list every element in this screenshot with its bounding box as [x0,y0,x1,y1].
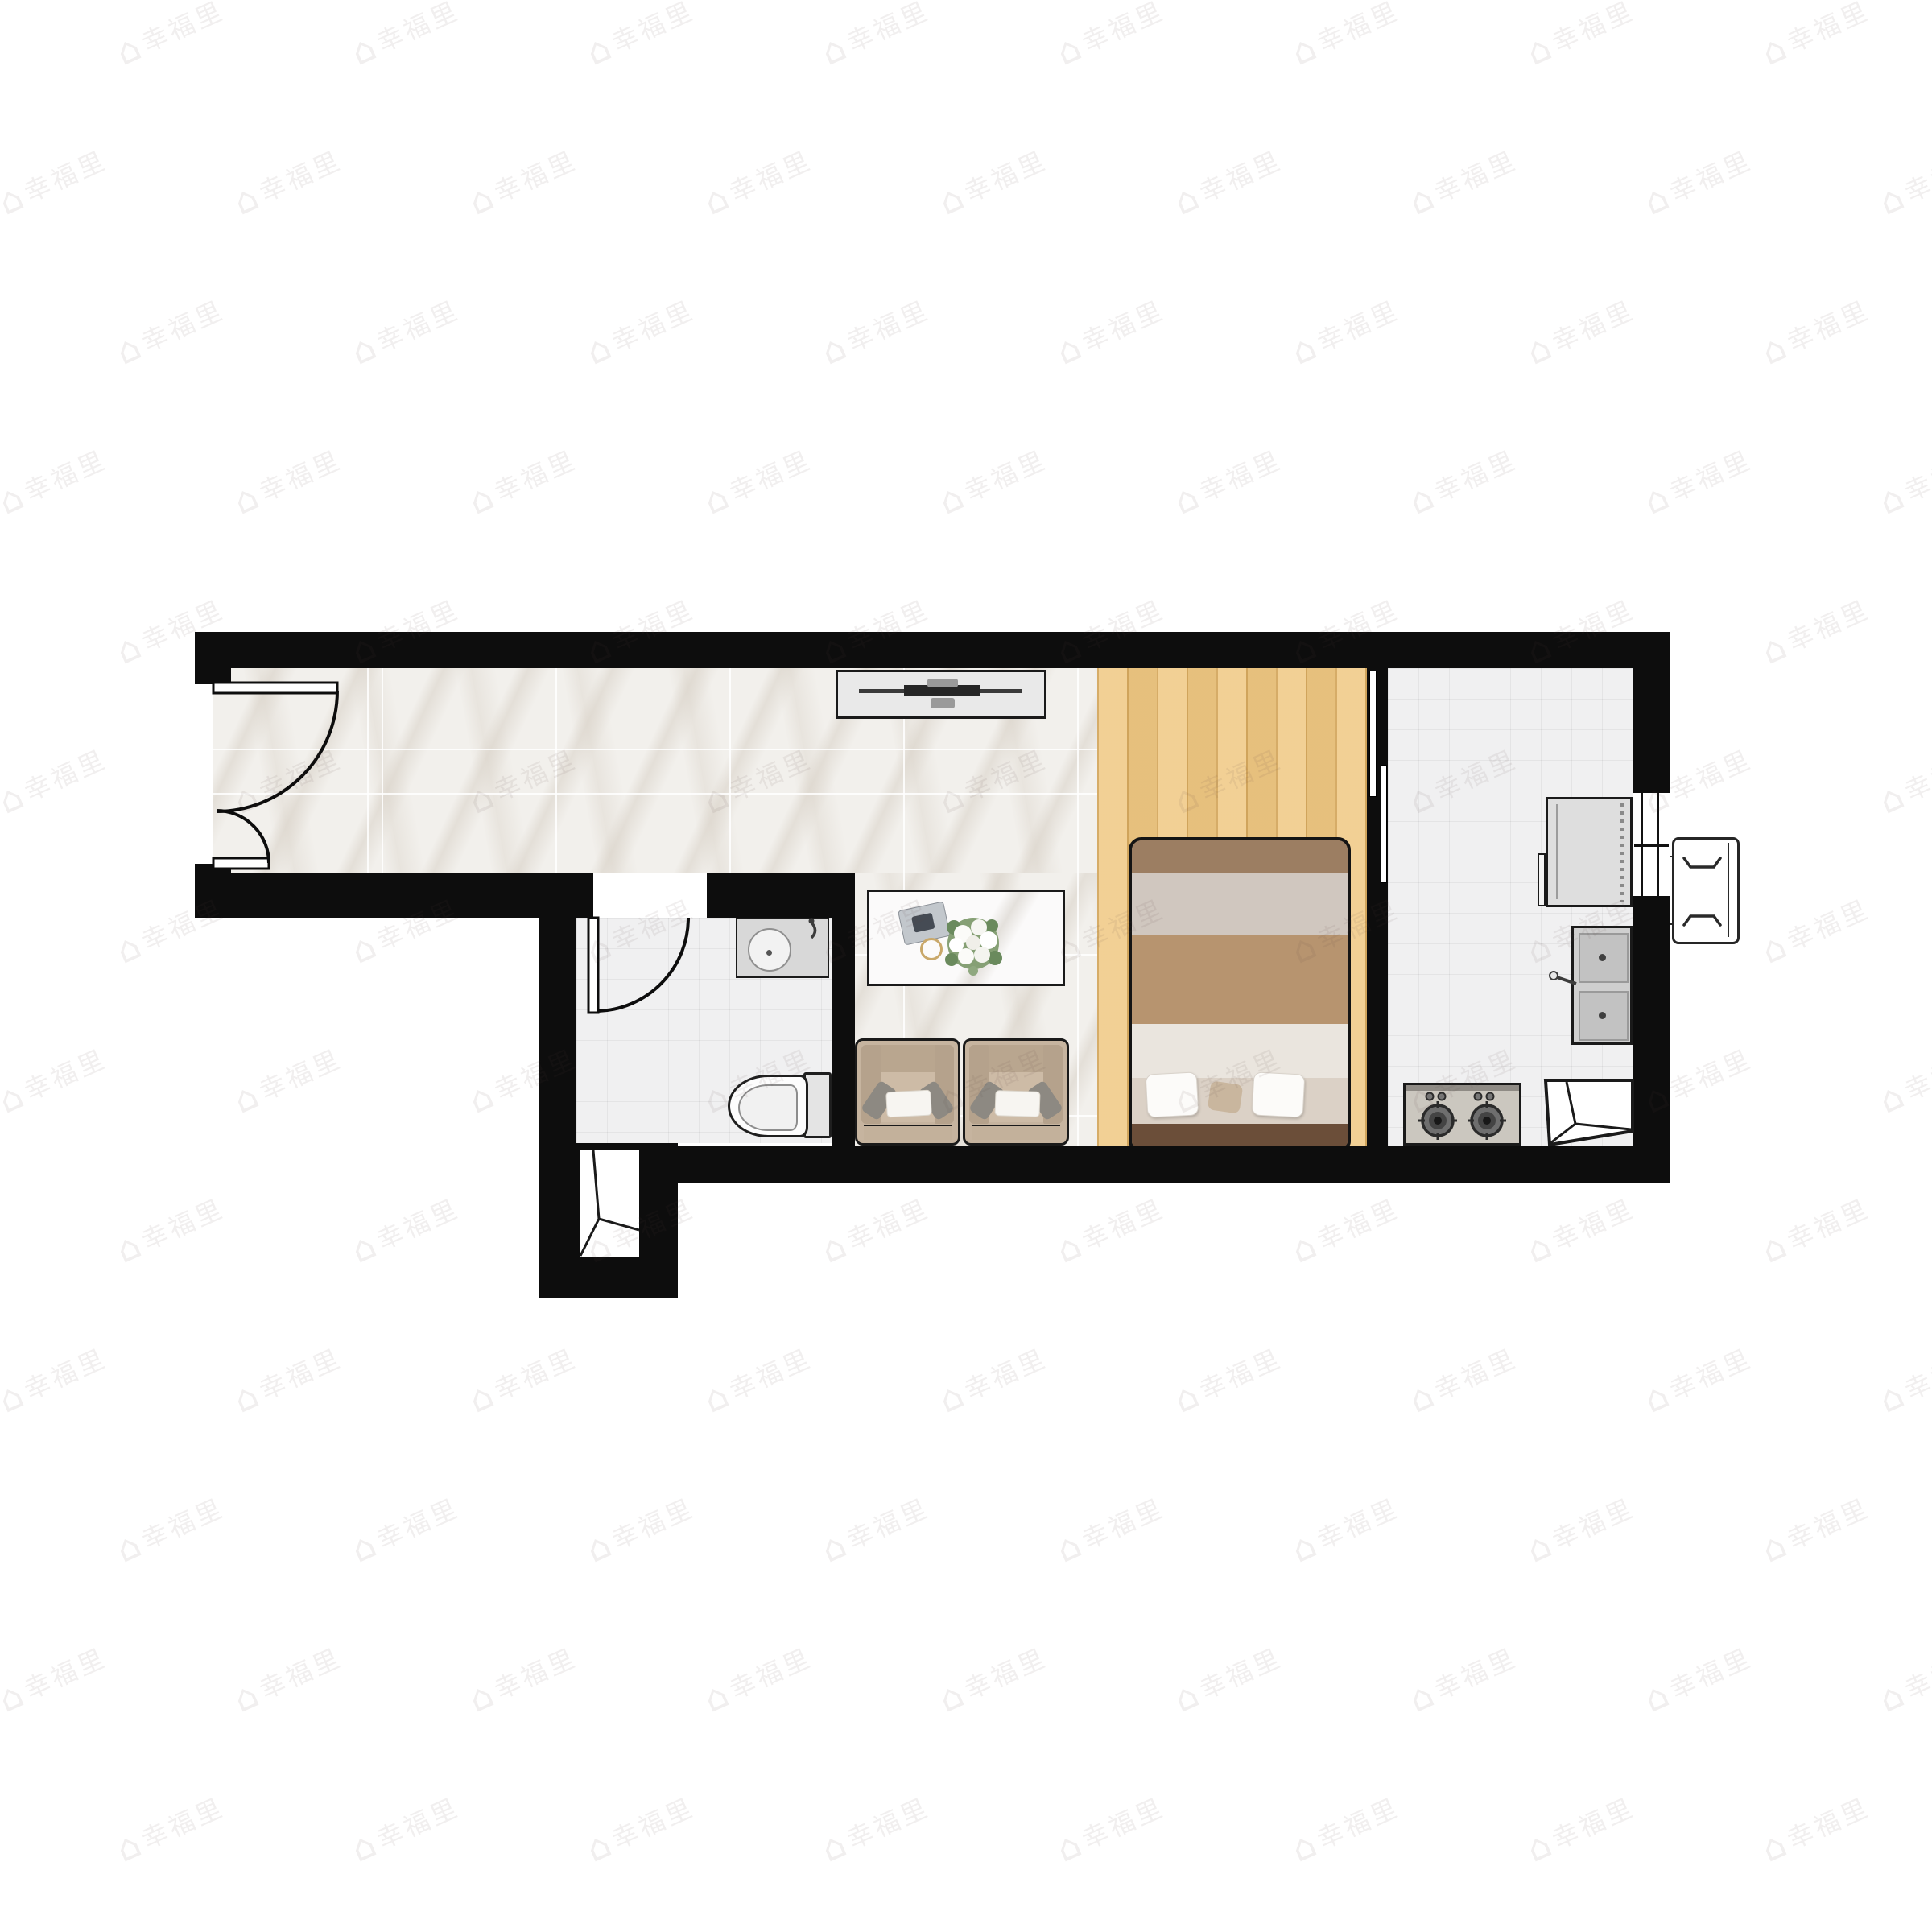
watermark-tile: ⌂幸福里 [1286,1790,1406,1868]
house-icon: ⌂ [1521,329,1556,371]
house-icon: ⌂ [816,329,851,371]
watermark-tile: ⌂幸福里 [111,292,230,371]
armchair-left [855,1038,960,1146]
tv-console [836,670,1046,719]
watermark-text: 幸福里 [1079,1495,1169,1554]
watermark-text: 幸福里 [1666,746,1757,805]
watermark-tile: ⌂幸福里 [229,1041,348,1120]
watermark-text: 幸福里 [844,297,934,356]
watermark-text: 幸福里 [609,1495,699,1554]
watermark-tile: ⌂幸福里 [1874,741,1932,820]
house-icon: ⌂ [1286,329,1321,371]
watermark-tile: ⌂幸福里 [581,1790,700,1868]
house-icon: ⌂ [1757,928,1791,970]
watermark-text: 幸福里 [1666,1046,1757,1104]
watermark-text: 幸福里 [726,147,816,206]
house-icon: ⌂ [1639,1677,1674,1719]
house-icon: ⌂ [1404,1377,1439,1419]
wall-right-upper [1633,668,1670,793]
ac-outdoor-unit [1672,837,1740,944]
watermark-text: 幸福里 [961,447,1051,506]
watermark-tile: ⌂幸福里 [1757,1191,1876,1269]
watermark-text: 幸福里 [1784,297,1874,356]
watermark-tile: ⌂幸福里 [1169,142,1288,221]
house-icon: ⌂ [346,1527,381,1569]
house-icon: ⌂ [346,30,381,72]
house-icon: ⌂ [1521,1527,1556,1569]
watermark-text: 幸福里 [1431,1345,1521,1404]
watermark-text: 幸福里 [726,1345,816,1404]
watermark-text: 幸福里 [21,1345,111,1404]
watermark-tile: ⌂幸福里 [816,1490,935,1569]
watermark-tile: ⌂幸福里 [1051,1790,1170,1868]
house-icon: ⌂ [1286,1527,1321,1569]
house-icon: ⌂ [1639,180,1674,221]
house-icon: ⌂ [1169,1677,1203,1719]
watermark-text: 幸福里 [374,1195,464,1254]
watermark-text: 幸福里 [1314,1495,1404,1554]
watermark-tile: ⌂幸福里 [111,0,230,72]
gas-stove [1403,1083,1521,1146]
house-icon: ⌂ [464,479,498,521]
house-icon: ⌂ [1051,329,1086,371]
bed-fold-lump [1207,1080,1244,1113]
house-icon: ⌂ [464,1677,498,1719]
house-icon: ⌂ [229,1078,263,1120]
watermark-text: 幸福里 [1314,0,1404,56]
house-icon: ⌂ [699,1377,733,1419]
ac-side-line [1728,843,1729,937]
window-mullion-tick [1634,844,1669,847]
entry-door-opening [195,684,213,864]
watermark-tile: ⌂幸福里 [464,1640,583,1719]
watermark-text: 幸福里 [374,1794,464,1853]
watermark-tile: ⌂幸福里 [1521,1490,1641,1569]
bathroom-door-opening [593,873,707,918]
house-icon: ⌂ [816,1527,851,1569]
white-pillow [885,1090,932,1118]
watermark-tile: ⌂幸福里 [699,142,818,221]
watermark-tile: ⌂幸福里 [1286,0,1406,72]
watermark-text: 幸福里 [1431,1645,1521,1703]
kitchen-sink [1571,926,1633,1045]
watermark-text: 幸福里 [1079,1794,1169,1853]
house-icon: ⌂ [934,1677,968,1719]
watermark-text: 幸福里 [726,447,816,506]
house-icon: ⌂ [1051,30,1086,72]
white-pillow [994,1090,1040,1117]
watermark-text: 幸福里 [1901,447,1932,506]
stove-back-strip [1406,1085,1519,1091]
wall-top [195,632,1670,668]
armchair-right [963,1038,1069,1146]
watermark-tile: ⌂幸福里 [1404,442,1523,521]
watermark-tile: ⌂幸福里 [464,1340,583,1419]
watermark-tile: ⌂幸福里 [1051,292,1170,371]
bed-headboard-bench [1132,1124,1348,1146]
watermark-text: 幸福里 [256,447,346,506]
watermark-tile: ⌂幸福里 [229,1340,348,1419]
watermark-tile: ⌂幸福里 [1639,1640,1758,1719]
watermark-tile: ⌂幸福里 [1521,0,1641,72]
house-icon: ⌂ [346,1827,381,1868]
watermark-tile: ⌂幸福里 [816,1790,935,1868]
house-icon: ⌂ [1639,1377,1674,1419]
house-icon: ⌂ [464,1078,498,1120]
fridge-door-line [1556,804,1558,899]
house-icon: ⌂ [464,1377,498,1419]
house-icon: ⌂ [1757,1228,1791,1269]
house-icon: ⌂ [1521,30,1556,72]
watermark-text: 幸福里 [609,297,699,356]
tv-mount-bottom [931,698,955,708]
watermark-tile: ⌂幸福里 [1757,0,1876,72]
house-icon: ⌂ [1404,479,1439,521]
watermark-tile: ⌂幸福里 [0,741,113,820]
flue-shaft [578,1148,642,1260]
watermark-text: 幸福里 [1431,147,1521,206]
watermark-text: 幸福里 [1784,1495,1874,1554]
sliding-door-panel-b [1381,765,1387,883]
watermark-text: 幸福里 [256,1345,346,1404]
house-icon: ⌂ [111,928,146,970]
watermark-tile: ⌂幸福里 [699,442,818,521]
house-icon: ⌂ [1051,1228,1086,1269]
sliding-door-panel-a [1369,671,1377,797]
watermark-text: 幸福里 [1666,1645,1757,1703]
house-icon: ⌂ [699,479,733,521]
house-icon: ⌂ [111,1228,146,1269]
coffee-table [867,890,1065,986]
watermark-text: 幸福里 [1079,0,1169,56]
house-icon: ⌂ [1051,1827,1086,1868]
house-icon: ⌂ [1757,629,1791,671]
watermark-text: 幸福里 [1666,147,1757,206]
house-icon: ⌂ [0,479,29,521]
house-icon: ⌂ [1757,1527,1791,1569]
watermark-tile: ⌂幸福里 [111,1790,230,1868]
house-icon: ⌂ [229,1677,263,1719]
bed-pillow [1146,1071,1199,1117]
watermark-text: 幸福里 [844,1195,934,1254]
fridge [1546,797,1633,907]
house-icon: ⌂ [699,180,733,221]
watermark-tile: ⌂幸福里 [1404,1640,1523,1719]
watermark-tile: ⌂幸福里 [1169,1640,1288,1719]
watermark-text: 幸福里 [21,746,111,805]
watermark-tile: ⌂幸福里 [1639,1340,1758,1419]
watermark-tile: ⌂幸福里 [229,442,348,521]
watermark-text: 幸福里 [21,147,111,206]
wall-hall-bottom-left [195,873,593,918]
house-icon: ⌂ [346,329,381,371]
watermark-text: 幸福里 [1901,746,1932,805]
watermark-text: 幸福里 [491,1645,581,1703]
watermark-text: 幸福里 [1784,1794,1874,1853]
house-icon: ⌂ [1874,1377,1909,1419]
watermark-text: 幸福里 [1784,597,1874,655]
chair-bench [972,1125,1060,1140]
watermark-text: 幸福里 [1784,896,1874,955]
watermark-text: 幸福里 [138,1794,229,1853]
watermark-text: 幸福里 [1079,297,1169,356]
house-icon: ⌂ [229,1377,263,1419]
house-icon: ⌂ [1874,479,1909,521]
watermark-tile: ⌂幸福里 [346,1191,465,1269]
house-icon: ⌂ [934,479,968,521]
watermark-tile: ⌂幸福里 [0,142,113,221]
watermark-text: 幸福里 [1196,1345,1286,1404]
sink-drain [1599,954,1606,961]
watermark-tile: ⌂幸福里 [581,0,700,72]
watermark-text: 幸福里 [256,1645,346,1703]
house-icon: ⌂ [1874,778,1909,820]
watermark-tile: ⌂幸福里 [229,142,348,221]
watermark-tile: ⌂幸福里 [1286,1191,1406,1269]
wall-bottom [576,1146,1670,1183]
house-icon: ⌂ [816,1827,851,1868]
house-icon: ⌂ [229,479,263,521]
watermark-text: 幸福里 [1549,1794,1639,1853]
house-icon: ⌂ [934,1377,968,1419]
watermark-tile: ⌂幸福里 [464,142,583,221]
house-icon: ⌂ [1404,180,1439,221]
watermark-text: 幸福里 [609,0,699,56]
wall-left-stub [195,632,231,684]
watermark-text: 幸福里 [1666,1345,1757,1404]
sink-drain [766,950,772,956]
house-icon: ⌂ [111,1527,146,1569]
watermark-text: 幸福里 [491,1345,581,1404]
house-icon: ⌂ [816,1228,851,1269]
house-icon: ⌂ [346,1228,381,1269]
wall-bath-right [832,873,855,1146]
watermark-text: 幸福里 [138,1195,229,1254]
watermark-tile: ⌂幸福里 [1286,292,1406,371]
watermark-text: 幸福里 [1901,147,1932,206]
house-icon: ⌂ [111,329,146,371]
table-gold-ring [920,938,943,960]
watermark-text: 幸福里 [844,0,934,56]
watermark-tile: ⌂幸福里 [1404,1340,1523,1419]
watermark-tile: ⌂幸福里 [1521,292,1641,371]
house-icon: ⌂ [111,629,146,671]
watermark-text: 幸福里 [374,0,464,56]
house-icon: ⌂ [1169,479,1203,521]
bathroom-sink [736,918,829,978]
house-icon: ⌂ [581,1827,616,1868]
watermark-text: 幸福里 [961,1645,1051,1703]
bed-blanket-light [1132,873,1348,935]
watermark-text: 幸福里 [1901,1345,1932,1404]
watermark-tile: ⌂幸福里 [1874,1340,1932,1419]
watermark-text: 幸福里 [1549,1495,1639,1554]
house-icon: ⌂ [581,329,616,371]
wall-right-lower [1633,896,1670,1183]
watermark-text: 幸福里 [21,447,111,506]
house-icon: ⌂ [1874,1677,1909,1719]
watermark-text: 幸福里 [1196,447,1286,506]
watermark-text: 幸福里 [961,1345,1051,1404]
bed-pillow [1252,1071,1306,1117]
chair-bench [864,1125,952,1140]
watermark-text: 幸福里 [1314,1195,1404,1254]
watermark-tile: ⌂幸福里 [346,0,465,72]
watermark-text: 幸福里 [1079,1195,1169,1254]
house-icon: ⌂ [1404,1677,1439,1719]
house-icon: ⌂ [1757,1827,1791,1868]
watermark-tile: ⌂幸福里 [934,1640,1053,1719]
watermark-text: 幸福里 [1314,1794,1404,1853]
watermark-tile: ⌂幸福里 [581,292,700,371]
floorplan-canvas: 幸福里 [0,0,1932,1932]
house-icon: ⌂ [0,778,29,820]
house-icon: ⌂ [0,180,29,221]
watermark-tile: ⌂幸福里 [1521,1790,1641,1868]
watermark-text: 幸福里 [256,1046,346,1104]
watermark-tile: ⌂幸福里 [1169,442,1288,521]
watermark-tile: ⌂幸福里 [1874,142,1932,221]
tray-item [911,913,935,933]
watermark-tile: ⌂幸福里 [0,1041,113,1120]
house-icon: ⌂ [934,180,968,221]
watermark-tile: ⌂幸福里 [111,1191,230,1269]
watermark-tile: ⌂幸福里 [1521,1191,1641,1269]
house-icon: ⌂ [699,1677,733,1719]
house-icon: ⌂ [1051,1527,1086,1569]
watermark-tile: ⌂幸福里 [346,1490,465,1569]
watermark-text: 幸福里 [1549,297,1639,356]
watermark-text: 幸福里 [1431,447,1521,506]
toilet-bowl [728,1075,808,1137]
house-icon: ⌂ [464,180,498,221]
house-icon: ⌂ [1286,1228,1321,1269]
watermark-text: 幸福里 [1196,1645,1286,1703]
watermark-text: 幸福里 [138,0,229,56]
house-icon: ⌂ [816,30,851,72]
double-bed [1129,837,1351,1150]
house-icon: ⌂ [1757,329,1791,371]
tv-mount-top [927,679,958,687]
watermark-tile: ⌂幸福里 [464,442,583,521]
watermark-text: 幸福里 [609,1794,699,1853]
house-icon: ⌂ [0,1677,29,1719]
watermark-tile: ⌂幸福里 [1169,1340,1288,1419]
watermark-tile: ⌂幸福里 [1874,1041,1932,1120]
watermark-text: 幸福里 [138,1495,229,1554]
house-icon: ⌂ [1286,30,1321,72]
house-icon: ⌂ [581,1527,616,1569]
watermark-tile: ⌂幸福里 [111,1490,230,1569]
watermark-text: 幸福里 [961,147,1051,206]
house-icon: ⌂ [111,1827,146,1868]
watermark-text: 幸福里 [491,147,581,206]
watermark-text: 幸福里 [1666,447,1757,506]
watermark-tile: ⌂幸福里 [934,442,1053,521]
house-icon: ⌂ [111,30,146,72]
house-icon: ⌂ [1521,1228,1556,1269]
watermark-tile: ⌂幸福里 [1757,592,1876,671]
watermark-tile: ⌂幸福里 [1757,1790,1876,1868]
watermark-text: 幸福里 [256,147,346,206]
watermark-text: 幸福里 [844,1794,934,1853]
watermark-tile: ⌂幸福里 [816,0,935,72]
bed-blanket-tan [1132,935,1348,1024]
house-icon: ⌂ [1874,1078,1909,1120]
sink-drain [1599,1012,1606,1019]
watermark-text: 幸福里 [1549,0,1639,56]
house-icon: ⌂ [0,1377,29,1419]
watermark-tile: ⌂幸福里 [1757,1490,1876,1569]
watermark-tile: ⌂幸福里 [0,1340,113,1419]
watermark-tile: ⌂幸福里 [699,1340,818,1419]
watermark-tile: ⌂幸福里 [934,142,1053,221]
watermark-tile: ⌂幸福里 [346,1790,465,1868]
watermark-text: 幸福里 [1784,0,1874,56]
watermark-tile: ⌂幸福里 [346,292,465,371]
toilet-seat [738,1084,798,1131]
watermark-text: 幸福里 [726,1645,816,1703]
watermark-tile: ⌂幸福里 [816,292,935,371]
fridge-coil-dots [1620,803,1624,902]
watermark-text: 幸福里 [491,447,581,506]
house-icon: ⌂ [0,1078,29,1120]
house-icon: ⌂ [1169,1377,1203,1419]
watermark-text: 幸福里 [21,1645,111,1703]
house-icon: ⌂ [1639,479,1674,521]
watermark-tile: ⌂幸福里 [1874,442,1932,521]
watermark-text: 幸福里 [1901,1046,1932,1104]
house-icon: ⌂ [581,30,616,72]
wall-left-lower [195,864,231,918]
bed-blanket-top [1132,840,1348,873]
bed-pillow-zone [1132,1078,1348,1124]
watermark-text: 幸福里 [844,1495,934,1554]
watermark-text: 幸福里 [1784,1195,1874,1254]
watermark-tile: ⌂幸福里 [1639,442,1758,521]
watermark-text: 幸福里 [138,297,229,356]
watermark-tile: ⌂幸福里 [1757,292,1876,371]
watermark-tile: ⌂幸福里 [229,1640,348,1719]
fridge-handle [1538,853,1546,906]
watermark-tile: ⌂幸福里 [699,1640,818,1719]
watermark-tile: ⌂幸福里 [934,1340,1053,1419]
watermark-tile: ⌂幸福里 [581,1490,700,1569]
bed-sheet-fold [1132,1024,1348,1078]
watermark-text: 幸福里 [21,1046,111,1104]
watermark-tile: ⌂幸福里 [1051,1490,1170,1569]
watermark-text: 幸福里 [1314,297,1404,356]
house-icon: ⌂ [346,928,381,970]
watermark-tile: ⌂幸福里 [1757,891,1876,970]
watermark-tile: ⌂幸福里 [816,1191,935,1269]
watermark-tile: ⌂幸福里 [0,1640,113,1719]
watermark-tile: ⌂幸福里 [1639,142,1758,221]
watermark-text: 幸福里 [374,297,464,356]
watermark-tile: ⌂幸福里 [1874,1640,1932,1719]
watermark-text: 幸福里 [1196,147,1286,206]
house-icon: ⌂ [1286,1827,1321,1868]
house-icon: ⌂ [1521,1827,1556,1868]
watermark-text: 幸福里 [1549,1195,1639,1254]
house-icon: ⌂ [1169,180,1203,221]
watermark-text: 幸福里 [374,1495,464,1554]
table-tray [898,901,951,945]
watermark-tile: ⌂幸福里 [0,442,113,521]
watermark-tile: ⌂幸福里 [1051,0,1170,72]
watermark-tile: ⌂幸福里 [1286,1490,1406,1569]
watermark-tile: ⌂幸福里 [1051,1191,1170,1269]
